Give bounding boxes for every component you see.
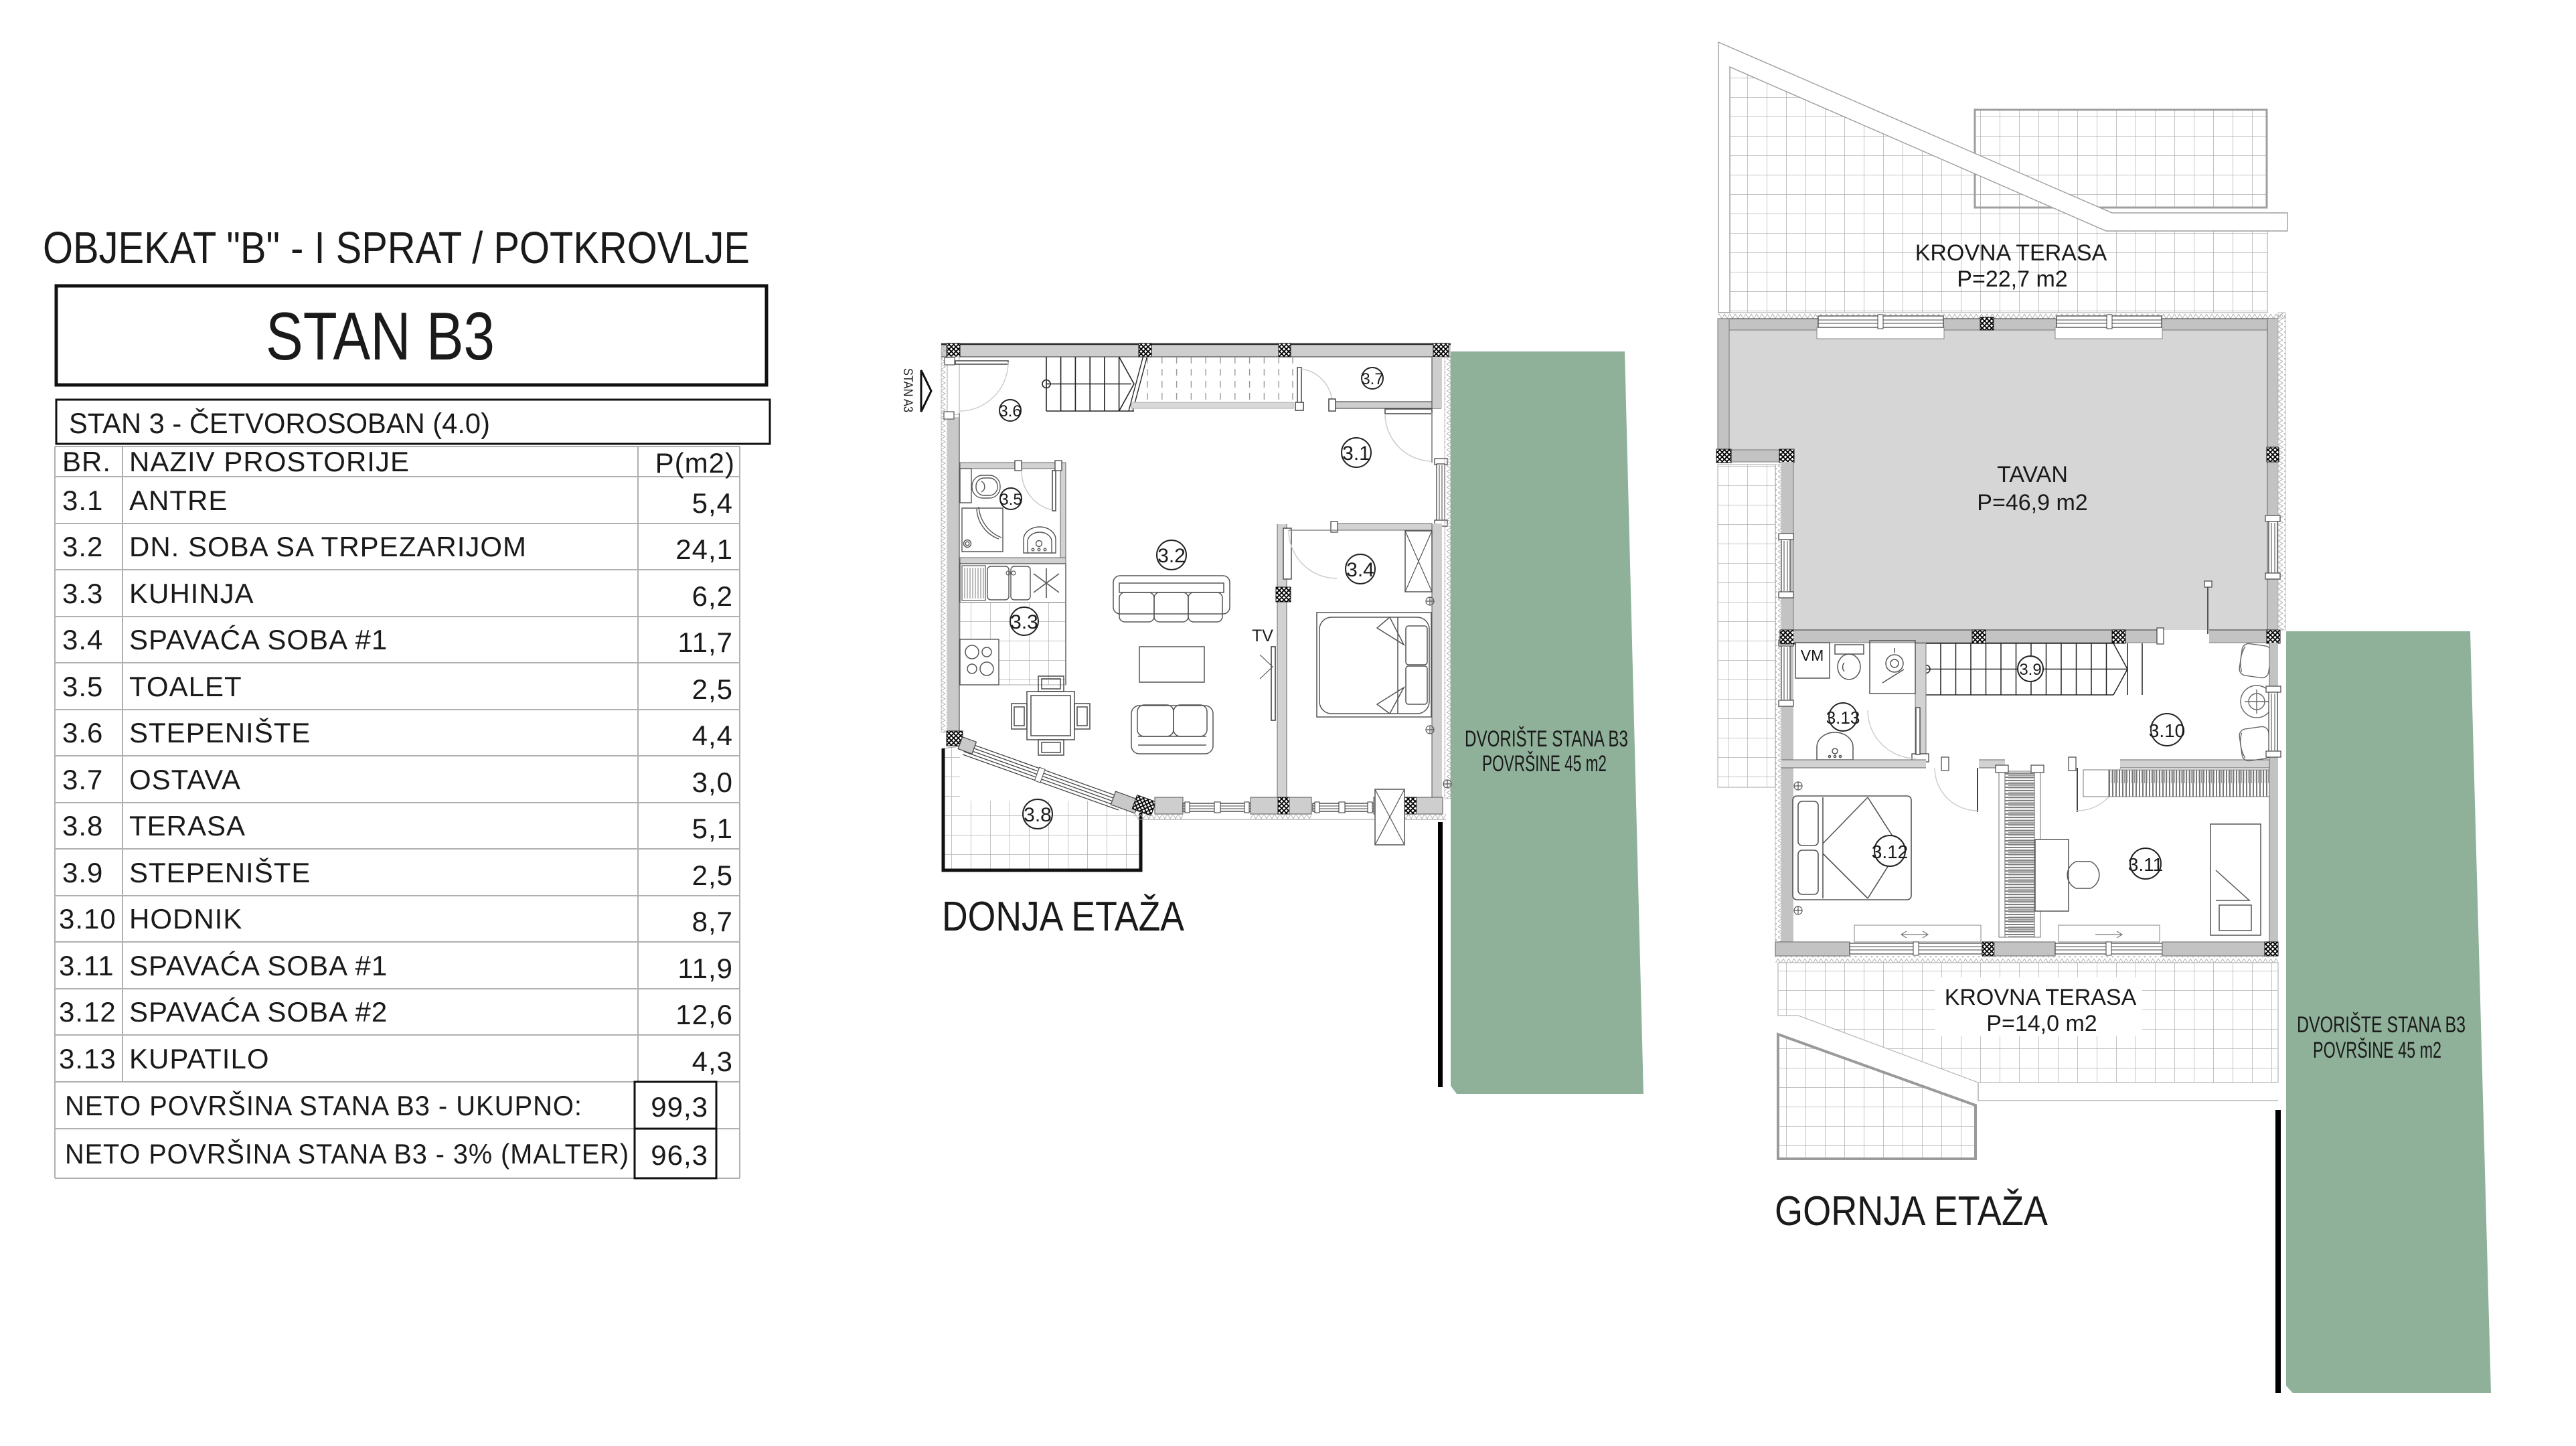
svg-text:OSTAVA: OSTAVA (129, 764, 241, 795)
svg-text:P(m2): P(m2) (655, 447, 735, 479)
svg-text:STEPENIŠTE: STEPENIŠTE (129, 857, 311, 888)
svg-text:5,1: 5,1 (692, 813, 733, 844)
svg-text:6,2: 6,2 (692, 580, 733, 612)
svg-text:3.8: 3.8 (62, 810, 103, 841)
svg-text:P=14,0 m2: P=14,0 m2 (1986, 1011, 2097, 1036)
svg-text:4,4: 4,4 (692, 720, 733, 751)
svg-text:3.11: 3.11 (2128, 854, 2163, 875)
svg-text:8,7: 8,7 (692, 906, 733, 937)
svg-text:NETO POVRŠINA STANA B3 - 3% (M: NETO POVRŠINA STANA B3 - 3% (MALTER) (65, 1138, 629, 1170)
svg-text:3.11: 3.11 (59, 950, 114, 981)
svg-text:TV: TV (1252, 627, 1273, 645)
svg-text:SPAVAĆA SOBA #1: SPAVAĆA SOBA #1 (129, 624, 388, 655)
svg-text:3.9: 3.9 (62, 857, 103, 888)
svg-text:KUPATILO: KUPATILO (129, 1043, 270, 1074)
svg-text:3.1: 3.1 (62, 485, 103, 516)
svg-text:11,7: 11,7 (677, 627, 733, 658)
svg-text:3.2: 3.2 (1157, 545, 1186, 567)
svg-text:3.1: 3.1 (1342, 443, 1370, 465)
svg-text:2,5: 2,5 (692, 673, 733, 705)
svg-text:3.13: 3.13 (1826, 708, 1860, 728)
svg-text:3.12: 3.12 (59, 996, 116, 1028)
svg-text:3.7: 3.7 (62, 764, 103, 795)
svg-text:SPAVAĆA SOBA #2: SPAVAĆA SOBA #2 (129, 996, 388, 1028)
svg-text:3.5: 3.5 (999, 491, 1022, 509)
svg-text:3.6: 3.6 (62, 717, 103, 748)
svg-text:2,5: 2,5 (692, 860, 733, 891)
svg-text:3.2: 3.2 (62, 531, 103, 562)
svg-text:SPAVAĆA SOBA #1: SPAVAĆA SOBA #1 (129, 950, 388, 981)
svg-text:99,3: 99,3 (651, 1091, 708, 1123)
svg-text:TAVAN: TAVAN (1997, 462, 2068, 487)
svg-text:KROVNA TERASA: KROVNA TERASA (1915, 240, 2107, 266)
svg-text:12,6: 12,6 (675, 999, 733, 1030)
svg-text:3.13: 3.13 (59, 1043, 116, 1074)
svg-text:DONJA ETAŽA: DONJA ETAŽA (942, 894, 1185, 940)
svg-text:3.3: 3.3 (62, 578, 103, 609)
svg-text:3.6: 3.6 (999, 402, 1021, 420)
svg-text:P=22,7 m2: P=22,7 m2 (1957, 266, 2067, 292)
svg-text:GORNJA ETAŽA: GORNJA ETAŽA (1775, 1188, 2048, 1234)
svg-text:3.4: 3.4 (62, 624, 103, 655)
svg-text:24,1: 24,1 (675, 534, 733, 565)
svg-text:KUHINJA: KUHINJA (129, 578, 254, 609)
svg-text:3.7: 3.7 (1361, 370, 1383, 388)
svg-text:96,3: 96,3 (651, 1139, 708, 1171)
svg-text:STAN B3: STAN B3 (266, 299, 495, 374)
svg-text:BR.: BR. (62, 446, 111, 477)
svg-text:KROVNA TERASA: KROVNA TERASA (1945, 985, 2137, 1010)
svg-text:OBJEKAT "B" - I SPRAT / POTKRO: OBJEKAT "B" - I SPRAT / POTKROVLJE (43, 223, 750, 273)
svg-text:4,3: 4,3 (692, 1046, 733, 1077)
svg-text:STAN A3: STAN A3 (900, 368, 914, 412)
svg-text:3.10: 3.10 (2149, 720, 2186, 741)
svg-text:3.4: 3.4 (1346, 559, 1374, 581)
svg-text:3.9: 3.9 (2019, 661, 2041, 679)
svg-text:NAZIV PROSTORIJE: NAZIV PROSTORIJE (129, 446, 410, 477)
svg-text:5,4: 5,4 (692, 487, 733, 519)
svg-text:3.3: 3.3 (1010, 611, 1038, 633)
svg-text:P=46,9 m2: P=46,9 m2 (1977, 490, 2087, 515)
svg-text:3.8: 3.8 (1024, 804, 1052, 826)
svg-text:POVRŠINE 45 m2: POVRŠINE 45 m2 (1482, 751, 1607, 777)
svg-text:VM: VM (1801, 647, 1824, 664)
svg-text:DN. SOBA SA TRPEZARIJOM: DN. SOBA SA TRPEZARIJOM (129, 531, 527, 562)
svg-text:11,9: 11,9 (677, 953, 733, 984)
svg-text:DVORIŠTE STANA B3: DVORIŠTE STANA B3 (1465, 726, 1628, 752)
svg-text:TOALET: TOALET (129, 671, 242, 702)
svg-text:3.12: 3.12 (1872, 841, 1909, 862)
svg-text:3.5: 3.5 (62, 671, 103, 702)
svg-text:3,0: 3,0 (692, 767, 733, 798)
svg-text:ANTRE: ANTRE (129, 485, 228, 516)
svg-text:STEPENIŠTE: STEPENIŠTE (129, 717, 311, 748)
svg-text:TERASA: TERASA (129, 810, 246, 841)
svg-text:NETO POVRŠINA STANA B3 - UKUPN: NETO POVRŠINA STANA B3 - UKUPNO: (65, 1090, 582, 1121)
svg-text:POVRŠINE 45 m2: POVRŠINE 45 m2 (2313, 1038, 2441, 1063)
svg-text:DVORIŠTE STANA B3: DVORIŠTE STANA B3 (2297, 1012, 2466, 1038)
svg-text:HODNIK: HODNIK (129, 903, 242, 935)
svg-text:3.10: 3.10 (59, 903, 116, 935)
svg-text:STAN 3 - ČETVOROSOBAN (4.0): STAN 3 - ČETVOROSOBAN (4.0) (69, 408, 490, 440)
